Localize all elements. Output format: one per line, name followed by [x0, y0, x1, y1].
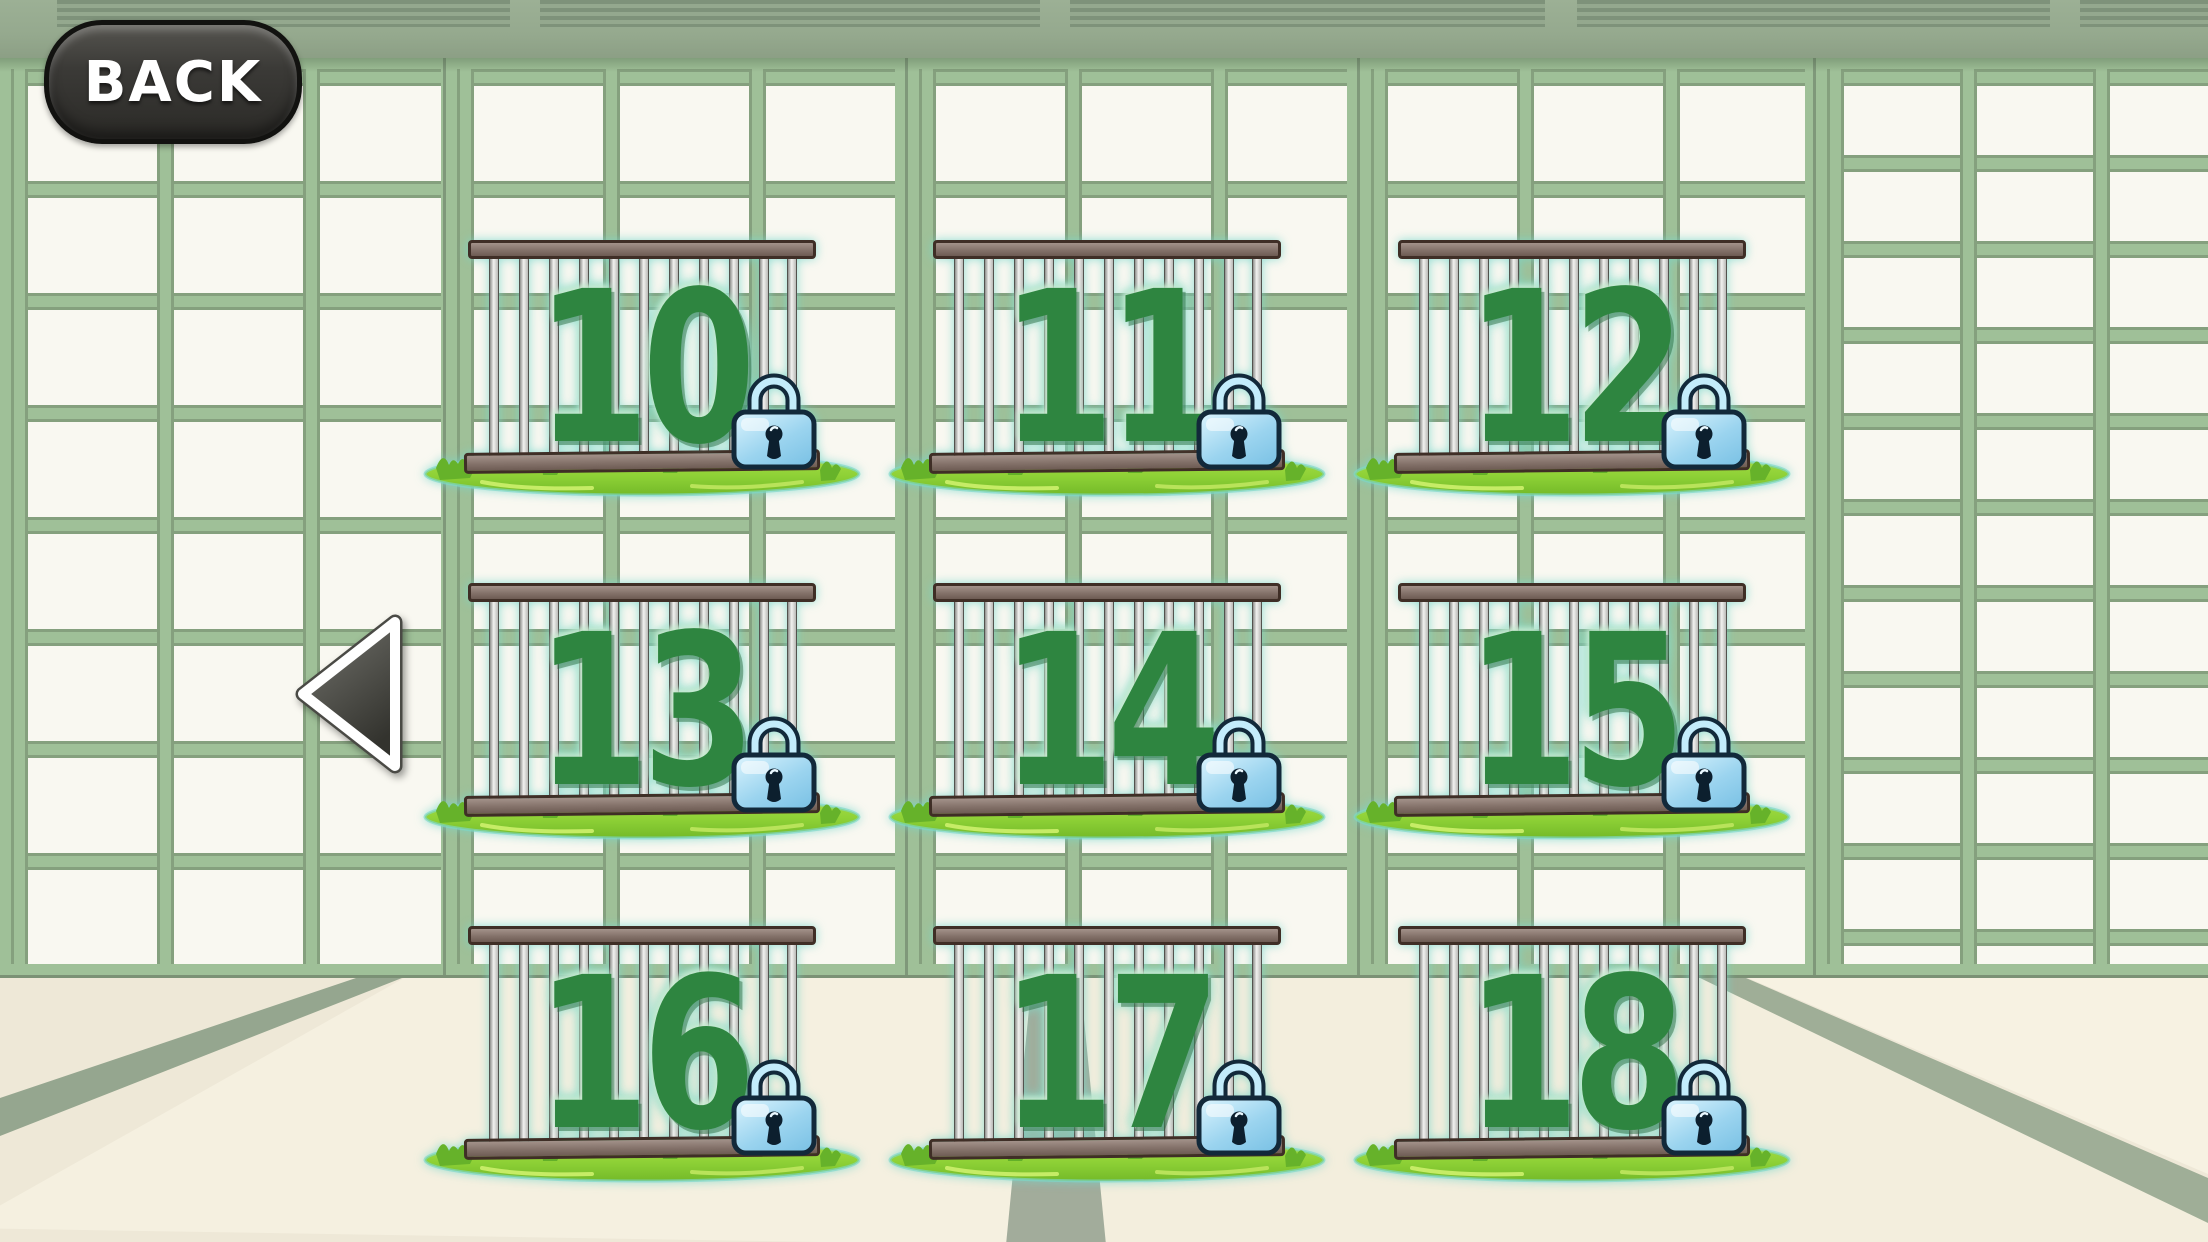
prev-page-button[interactable]	[291, 612, 415, 776]
level-cage[interactable]: 13	[477, 583, 807, 836]
wall-section	[0, 58, 452, 975]
level-cage[interactable]: 16	[477, 926, 807, 1179]
padlock-icon	[1196, 709, 1282, 813]
level-cage[interactable]: 14	[942, 583, 1272, 836]
padlock-icon	[731, 709, 817, 813]
padlock-icon	[731, 1052, 817, 1156]
back-button[interactable]: BACK	[44, 20, 302, 144]
padlock-icon	[1661, 366, 1747, 470]
beam-grille	[1070, 0, 1545, 26]
level-grid: 10 11	[477, 240, 1737, 1179]
padlock-icon	[731, 366, 817, 470]
level-select-screen: 10 11	[0, 0, 2208, 1242]
level-cage[interactable]: 15	[1407, 583, 1737, 836]
level-cage[interactable]: 10	[477, 240, 807, 493]
top-beam	[0, 0, 2208, 58]
triangle-left-icon	[291, 612, 415, 776]
level-cage[interactable]: 11	[942, 240, 1272, 493]
padlock-icon	[1661, 709, 1747, 813]
wall-section	[1816, 58, 2208, 975]
beam-shadow	[0, 58, 2208, 72]
padlock-icon	[1661, 1052, 1747, 1156]
beam-grille	[540, 0, 1040, 26]
beam-grille	[1577, 0, 2050, 26]
level-cage[interactable]: 17	[942, 926, 1272, 1179]
padlock-icon	[1196, 366, 1282, 470]
beam-grille	[2080, 0, 2208, 26]
level-cage[interactable]: 12	[1407, 240, 1737, 493]
level-cage[interactable]: 18	[1407, 926, 1737, 1179]
padlock-icon	[1196, 1052, 1282, 1156]
